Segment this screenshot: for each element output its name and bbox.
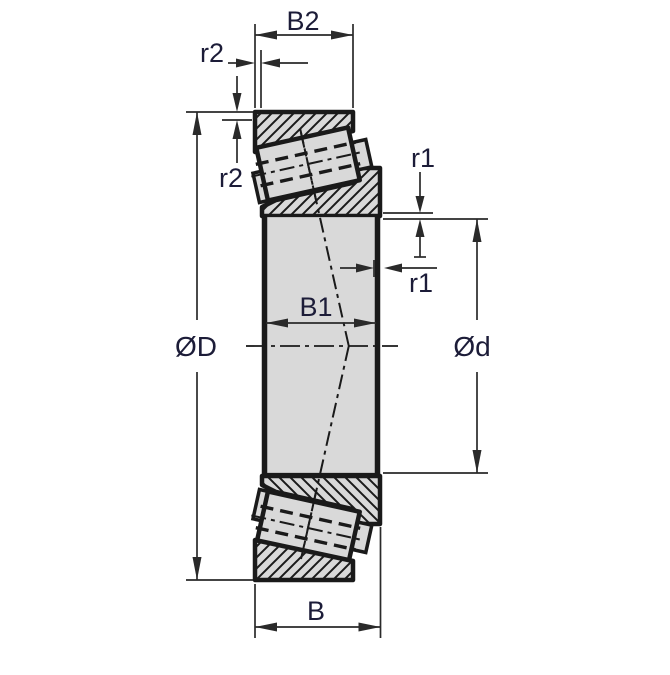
bearing-dimension-drawing: B2 r2 r2 ØD Ød bbox=[0, 0, 670, 670]
label-r2-top: r2 bbox=[200, 38, 224, 68]
label-r2-left: r2 bbox=[219, 163, 243, 193]
dimension-B2: B2 bbox=[255, 6, 353, 108]
label-B2: B2 bbox=[286, 6, 319, 36]
dimension-r2-top: r2 bbox=[200, 38, 308, 108]
label-outer-diameter: ØD bbox=[175, 331, 217, 362]
label-B1: B1 bbox=[299, 292, 332, 322]
dimension-r1-upper: r1 bbox=[383, 143, 435, 257]
label-B: B bbox=[307, 596, 325, 626]
label-r1-lower: r1 bbox=[409, 268, 433, 298]
bearing-diagram-svg: B2 r2 r2 ØD Ød bbox=[0, 0, 670, 670]
dimension-r2-left: r2 bbox=[219, 76, 252, 193]
cone-middle-body bbox=[262, 214, 380, 476]
dimension-bore-diameter: Ød bbox=[383, 219, 491, 473]
label-bore-diameter: Ød bbox=[453, 331, 490, 362]
label-r1-upper: r1 bbox=[411, 143, 435, 173]
